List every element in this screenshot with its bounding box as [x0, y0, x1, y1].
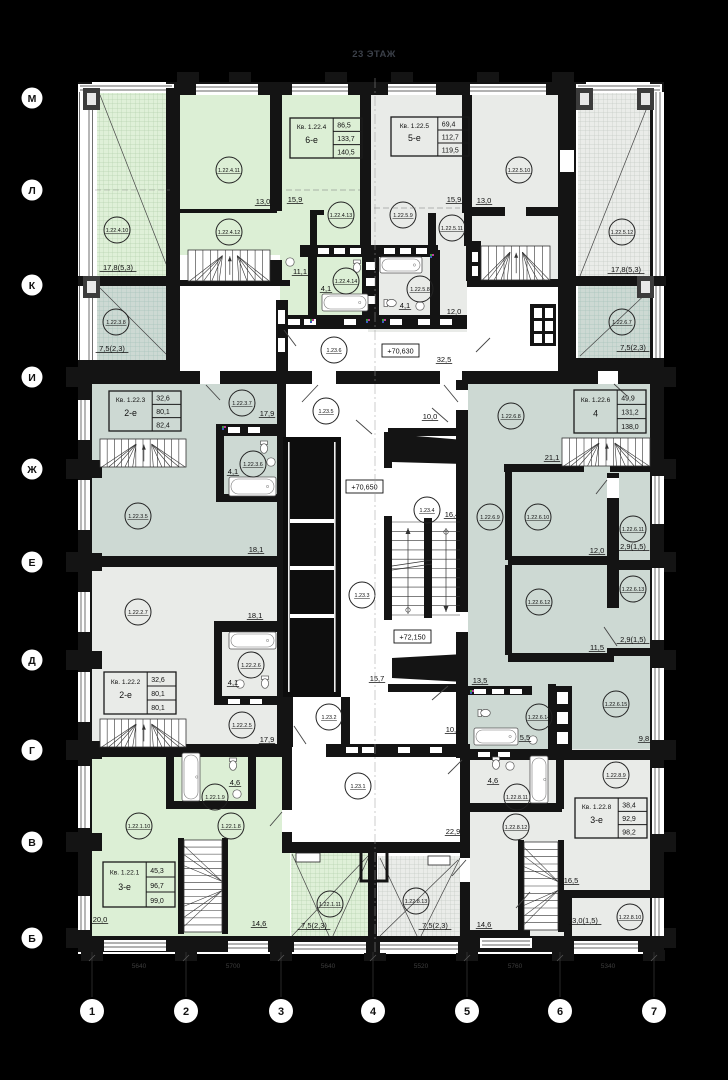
svg-text:Г: Г	[29, 745, 35, 757]
svg-text:20,0: 20,0	[93, 915, 108, 924]
svg-text:+70,630: +70,630	[387, 347, 413, 356]
svg-text:69,4: 69,4	[442, 121, 456, 128]
svg-text:4,1: 4,1	[228, 467, 238, 476]
svg-text:7,5(2,3): 7,5(2,3)	[620, 343, 646, 352]
svg-text:11,5: 11,5	[590, 643, 604, 652]
svg-text:6-е: 6-е	[305, 135, 318, 145]
svg-text:1.22.3.5: 1.22.3.5	[128, 514, 147, 520]
svg-text:1.23.1: 1.23.1	[351, 784, 366, 790]
svg-text:Кв. 1.22.4: Кв. 1.22.4	[297, 124, 327, 131]
svg-text:1.22.8.9: 1.22.8.9	[606, 773, 625, 779]
svg-text:15,9: 15,9	[288, 195, 303, 204]
svg-text:7,5(2,3): 7,5(2,3)	[422, 921, 448, 930]
svg-text:14,6: 14,6	[477, 920, 492, 929]
svg-text:12,0: 12,0	[447, 307, 462, 316]
svg-text:2-е: 2-е	[124, 408, 137, 418]
svg-text:5340: 5340	[601, 963, 616, 970]
svg-text:5700: 5700	[226, 963, 241, 970]
svg-text:1.22.5.11: 1.22.5.11	[441, 226, 463, 232]
svg-text:1.23.4: 1.23.4	[420, 508, 435, 514]
svg-text:1.22.4.12: 1.22.4.12	[218, 230, 240, 236]
svg-text:2: 2	[183, 1006, 189, 1018]
svg-text:1.22.6.10: 1.22.6.10	[527, 515, 549, 521]
svg-text:82,4: 82,4	[156, 422, 170, 429]
svg-text:133,7: 133,7	[337, 136, 355, 143]
svg-text:16,5: 16,5	[564, 876, 579, 885]
svg-text:1.22.1.11: 1.22.1.11	[319, 902, 341, 908]
svg-text:131,2: 131,2	[621, 410, 639, 417]
svg-text:М: М	[28, 93, 37, 105]
svg-text:К: К	[29, 280, 36, 292]
svg-text:Е: Е	[28, 557, 35, 569]
svg-text:17,8(5,3): 17,8(5,3)	[611, 265, 642, 274]
svg-text:12,0: 12,0	[590, 546, 605, 555]
svg-text:3-е: 3-е	[118, 882, 131, 892]
svg-text:5640: 5640	[132, 963, 147, 970]
svg-text:80,1: 80,1	[156, 409, 170, 416]
svg-text:2,9(1,5): 2,9(1,5)	[620, 635, 646, 644]
svg-text:2-е: 2-е	[119, 690, 132, 700]
svg-text:1.23.6: 1.23.6	[327, 348, 342, 354]
svg-text:49,9: 49,9	[621, 395, 635, 402]
svg-text:10,0: 10,0	[423, 412, 438, 421]
svg-text:92,9: 92,9	[622, 816, 636, 823]
svg-text:1.22.6.8: 1.22.6.8	[501, 414, 520, 420]
svg-text:17,9: 17,9	[260, 409, 275, 418]
svg-text:13,0: 13,0	[256, 197, 271, 206]
svg-text:13,5: 13,5	[473, 676, 488, 685]
svg-text:5760: 5760	[508, 963, 523, 970]
svg-text:38,4: 38,4	[622, 803, 636, 810]
svg-text:6: 6	[557, 1006, 563, 1018]
svg-text:1.23.2: 1.23.2	[322, 715, 337, 721]
svg-text:4,1: 4,1	[228, 678, 238, 687]
svg-text:32,6: 32,6	[156, 396, 170, 403]
svg-text:Кв. 1.22.3: Кв. 1.22.3	[116, 397, 146, 404]
svg-text:3,0(1,5): 3,0(1,5)	[572, 916, 598, 925]
svg-text:1.22.2.5: 1.22.2.5	[232, 723, 251, 729]
svg-text:1.22.8.13: 1.22.8.13	[405, 899, 427, 905]
svg-text:Кв. 1.22.2: Кв. 1.22.2	[111, 679, 141, 686]
svg-text:5-е: 5-е	[408, 133, 421, 143]
svg-text:11,1: 11,1	[293, 267, 307, 276]
svg-text:10,1: 10,1	[446, 725, 461, 734]
svg-text:9,8: 9,8	[639, 734, 649, 743]
svg-text:7: 7	[651, 1006, 657, 1018]
svg-text:4,1: 4,1	[321, 284, 331, 293]
svg-text:18,1: 18,1	[248, 611, 263, 620]
svg-text:1.23.5: 1.23.5	[319, 409, 334, 415]
svg-text:32,5: 32,5	[437, 355, 452, 364]
svg-text:Ж: Ж	[26, 464, 37, 476]
svg-text:И: И	[28, 372, 36, 384]
svg-text:1.22.5.12: 1.22.5.12	[611, 230, 633, 236]
svg-text:1.22.4.11: 1.22.4.11	[218, 168, 240, 174]
svg-text:138,0: 138,0	[621, 424, 639, 431]
svg-text:17,9: 17,9	[260, 735, 275, 744]
svg-text:1.22.2.7: 1.22.2.7	[128, 610, 147, 616]
svg-text:1.22.2.6: 1.22.2.6	[241, 663, 260, 669]
svg-text:3: 3	[278, 1006, 284, 1018]
svg-text:4,6: 4,6	[230, 778, 240, 787]
svg-text:1.22.6.15: 1.22.6.15	[605, 702, 627, 708]
svg-text:14,6: 14,6	[252, 919, 267, 928]
svg-text:98,2: 98,2	[622, 829, 636, 836]
svg-text:32,6: 32,6	[151, 677, 165, 684]
svg-text:5,5: 5,5	[520, 733, 530, 742]
svg-text:1.22.8.10: 1.22.8.10	[619, 915, 641, 921]
svg-text:4: 4	[593, 409, 598, 419]
svg-text:+70,650: +70,650	[351, 483, 377, 492]
svg-text:Кв. 1.22.6: Кв. 1.22.6	[581, 397, 611, 404]
svg-text:1.22.4.10: 1.22.4.10	[106, 228, 128, 234]
svg-text:80,1: 80,1	[151, 691, 165, 698]
svg-text:1.22.4.14: 1.22.4.14	[335, 279, 357, 285]
svg-text:1.22.6.14: 1.22.6.14	[528, 715, 550, 721]
svg-text:1.23.3: 1.23.3	[355, 593, 370, 599]
svg-text:96,7: 96,7	[150, 883, 164, 890]
svg-text:22,9: 22,9	[446, 827, 461, 836]
svg-text:Л: Л	[28, 185, 35, 197]
svg-text:21,1: 21,1	[545, 453, 560, 462]
svg-text:80,1: 80,1	[151, 705, 165, 712]
svg-text:Кв. 1.22.8: Кв. 1.22.8	[582, 804, 612, 811]
svg-text:В: В	[28, 837, 36, 849]
svg-text:1.22.4.13: 1.22.4.13	[330, 213, 352, 219]
svg-text:86,5: 86,5	[337, 123, 351, 130]
svg-text:112,7: 112,7	[442, 134, 459, 141]
svg-text:1.22.6.7: 1.22.6.7	[612, 320, 631, 326]
svg-text:7,5(2,3): 7,5(2,3)	[99, 344, 125, 353]
svg-text:1.22.5.8: 1.22.5.8	[410, 287, 429, 293]
svg-text:15,9: 15,9	[447, 195, 462, 204]
svg-text:1.22.8.11: 1.22.8.11	[506, 795, 528, 801]
svg-text:1.22.6.13: 1.22.6.13	[622, 587, 644, 593]
svg-text:1.22.6.12: 1.22.6.12	[528, 600, 550, 606]
svg-text:2,9(1,5): 2,9(1,5)	[620, 542, 646, 551]
svg-text:7,5(2,3): 7,5(2,3)	[301, 921, 327, 930]
svg-text:5520: 5520	[414, 963, 429, 970]
svg-text:4,1: 4,1	[400, 301, 410, 310]
svg-text:Кв. 1.22.1: Кв. 1.22.1	[110, 870, 140, 877]
svg-text:99,0: 99,0	[150, 898, 164, 905]
svg-text:1: 1	[89, 1006, 95, 1018]
svg-text:1.22.5.9: 1.22.5.9	[393, 213, 412, 219]
svg-text:119,5: 119,5	[442, 147, 459, 154]
svg-text:+72,150: +72,150	[399, 633, 425, 642]
svg-text:4,6: 4,6	[488, 776, 498, 785]
svg-text:1.22.3.8: 1.22.3.8	[106, 320, 125, 326]
svg-text:1.22.1.10: 1.22.1.10	[128, 824, 150, 830]
svg-text:45,3: 45,3	[150, 868, 164, 875]
svg-text:16,4: 16,4	[445, 510, 460, 519]
svg-text:1.22.3.6: 1.22.3.6	[243, 462, 262, 468]
svg-text:5: 5	[464, 1006, 470, 1018]
svg-text:1.22.6.9: 1.22.6.9	[480, 515, 499, 521]
svg-text:17,8(5,3): 17,8(5,3)	[103, 263, 134, 272]
svg-text:Б: Б	[28, 933, 36, 945]
svg-text:15,7: 15,7	[370, 674, 385, 683]
svg-text:1.22.1.9: 1.22.1.9	[205, 795, 224, 801]
svg-text:1.22.8.12: 1.22.8.12	[505, 825, 527, 831]
svg-text:140,5: 140,5	[337, 149, 355, 156]
svg-text:1.22.6.11: 1.22.6.11	[622, 527, 644, 533]
svg-text:4: 4	[370, 1006, 377, 1018]
svg-text:Кв. 1.22.5: Кв. 1.22.5	[400, 123, 430, 130]
svg-text:18,1: 18,1	[249, 545, 264, 554]
svg-text:Д: Д	[28, 655, 36, 667]
svg-text:13,0: 13,0	[477, 196, 492, 205]
svg-text:1.22.5.10: 1.22.5.10	[508, 168, 530, 174]
svg-text:3-е: 3-е	[590, 815, 603, 825]
svg-text:1.22.1.8: 1.22.1.8	[221, 824, 240, 830]
svg-text:5640: 5640	[321, 963, 336, 970]
svg-text:1.22.3.7: 1.22.3.7	[232, 401, 251, 407]
svg-text:23 ЭТАЖ: 23 ЭТАЖ	[352, 49, 395, 60]
